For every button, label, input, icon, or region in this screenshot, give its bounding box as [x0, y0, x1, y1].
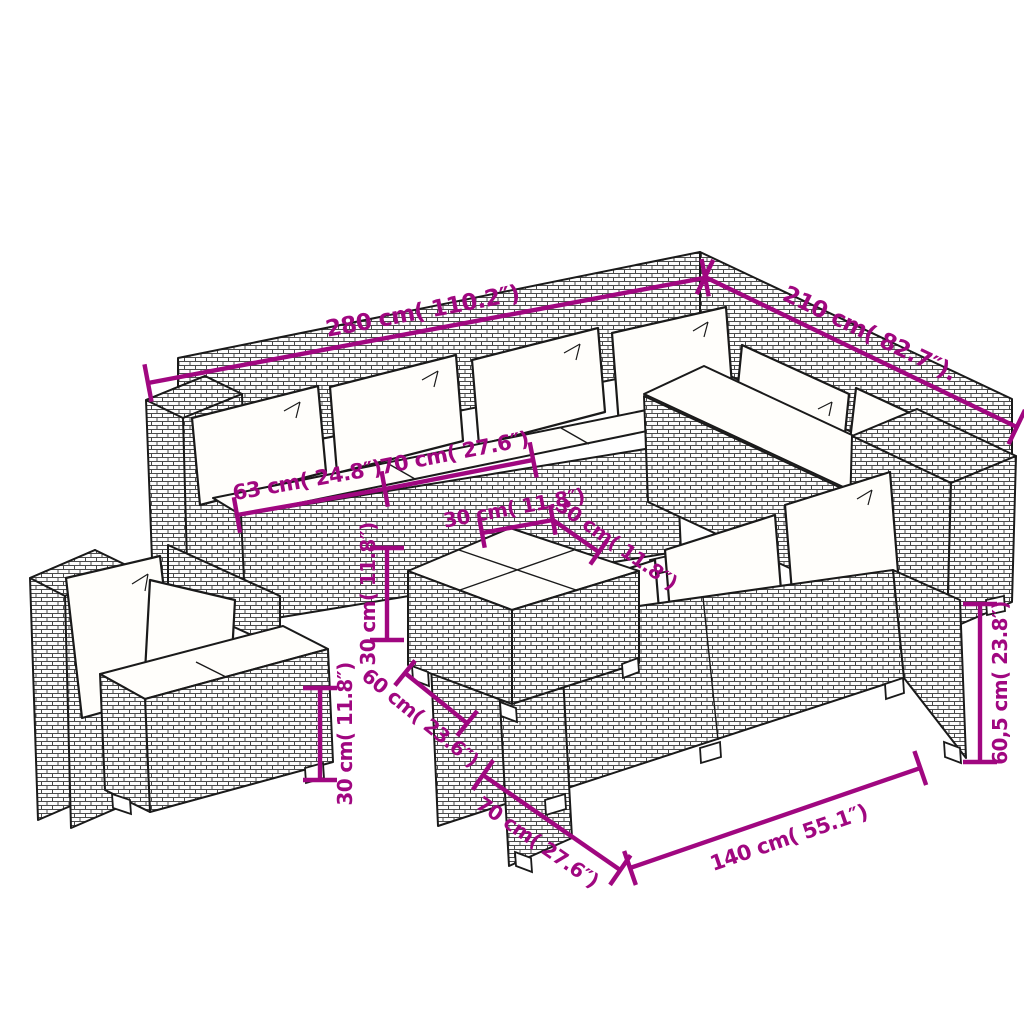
dim-sofa-height: 60,5 cm( 23.8″) — [963, 601, 1012, 765]
dim-label-sofa-height: 60,5 cm( 23.8″) — [988, 601, 1012, 765]
dim-label-sofa-width: 140 cm( 55.1″) — [707, 799, 871, 875]
dim-label-table-height: 30 cm( 11.8″) — [356, 522, 380, 665]
diagram-canvas: 280 cm( 110.2″) 210 cm( 82.7″). 63 cm( 2… — [0, 0, 1024, 1024]
dim-sofa-width: 140 cm( 55.1″) — [624, 751, 932, 901]
product-dimension-diagram: 280 cm( 110.2″) 210 cm( 82.7″). 63 cm( 2… — [0, 0, 1024, 1024]
sofa-foot — [700, 742, 721, 763]
dim-label-ottoman-height: 30 cm( 11.8″) — [333, 662, 357, 805]
sofa-right-side — [893, 570, 966, 758]
